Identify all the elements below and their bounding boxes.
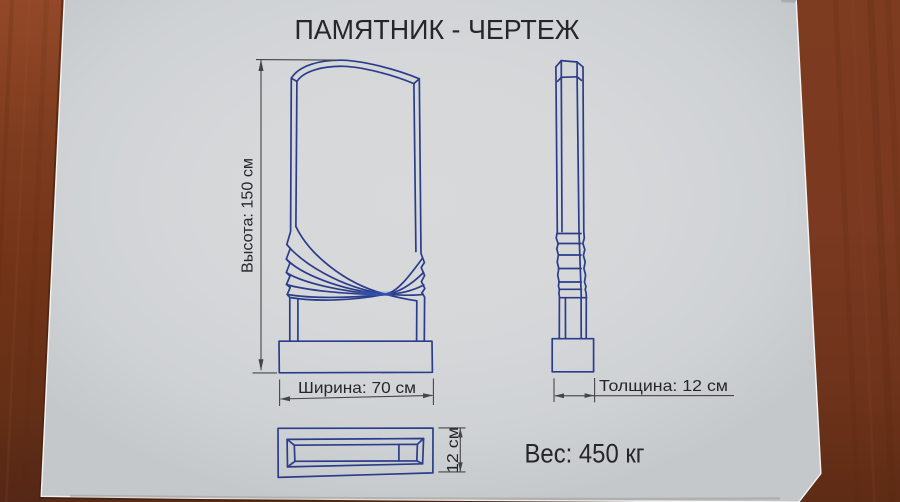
svg-text:ПАМЯТНИК - ЧЕРТЕЖ: ПАМЯТНИК - ЧЕРТЕЖ: [295, 14, 581, 45]
svg-text:12 см: 12 см: [445, 427, 462, 473]
svg-text:Толщина: 12 см: Толщина: 12 см: [599, 378, 728, 395]
svg-text:Высота: 150 см: Высота: 150 см: [240, 158, 257, 273]
svg-text:Ширина: 70 см: Ширина: 70 см: [298, 380, 416, 397]
svg-text:Вес: 450 кг: Вес: 450 кг: [525, 439, 645, 469]
